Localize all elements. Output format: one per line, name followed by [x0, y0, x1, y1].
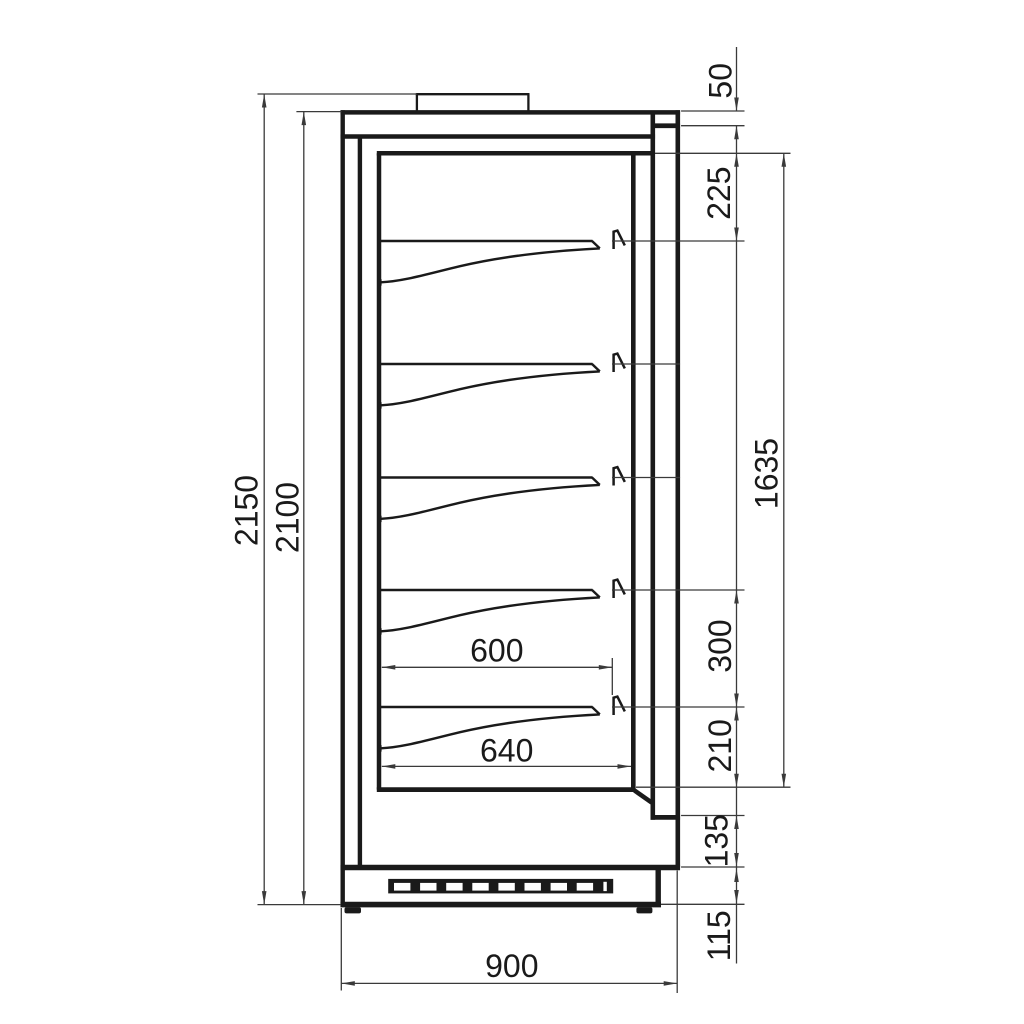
svg-text:2150: 2150 — [228, 475, 264, 546]
svg-text:135: 135 — [699, 814, 735, 867]
svg-text:225: 225 — [701, 167, 737, 220]
svg-text:640: 640 — [480, 733, 533, 769]
svg-text:300: 300 — [702, 619, 738, 672]
svg-text:50: 50 — [702, 63, 738, 99]
svg-text:900: 900 — [485, 948, 538, 984]
svg-text:1635: 1635 — [748, 438, 784, 509]
svg-text:600: 600 — [470, 633, 523, 669]
svg-text:210: 210 — [702, 719, 738, 772]
svg-text:115: 115 — [701, 910, 737, 961]
svg-text:2100: 2100 — [270, 482, 306, 553]
